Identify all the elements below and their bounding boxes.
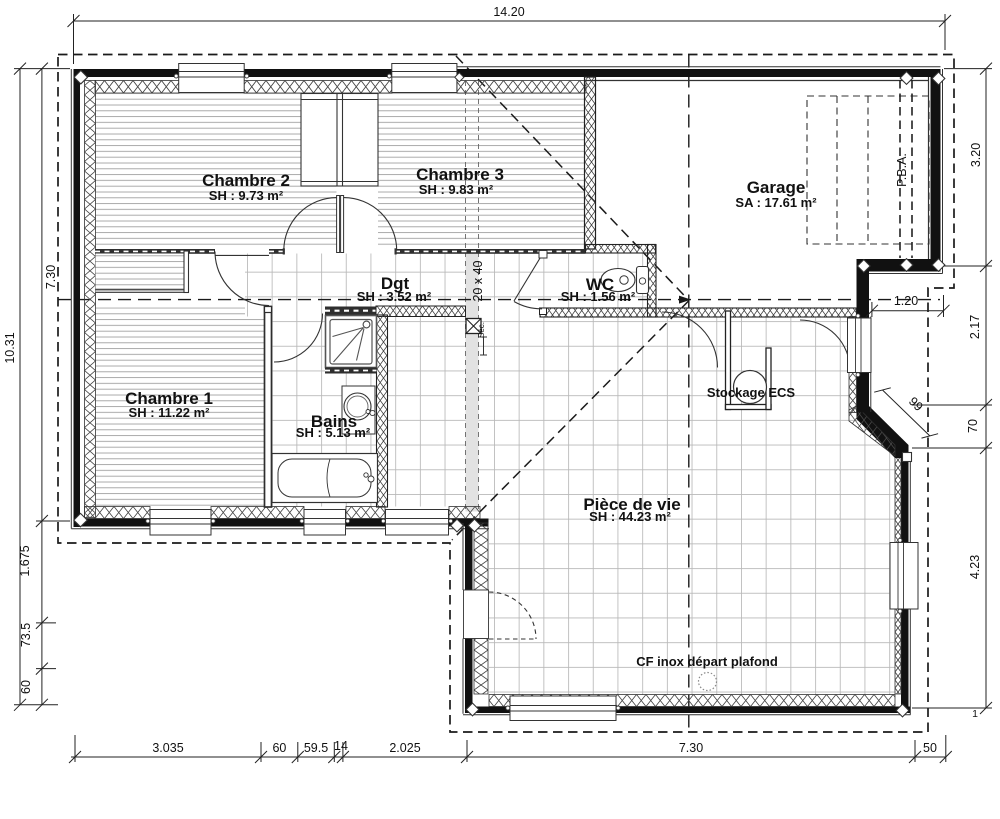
svg-text:SH : 44.23 m²: SH : 44.23 m² [589,509,671,524]
svg-text:1.675: 1.675 [18,545,32,576]
svg-text:10.31: 10.31 [3,332,17,363]
svg-text:7.30: 7.30 [679,741,703,755]
svg-text:SH : 5.13 m²: SH : 5.13 m² [296,425,371,440]
svg-text:2.025: 2.025 [389,741,420,755]
svg-text:73.5: 73.5 [19,623,33,647]
svg-text:SH : 11.22 m²: SH : 11.22 m² [129,405,211,420]
svg-text:14.20: 14.20 [493,5,524,19]
svg-text:SH : 3.52 m²: SH : 3.52 m² [357,289,432,304]
svg-text:Stockage ECS: Stockage ECS [707,385,795,400]
svg-text:70: 70 [966,419,980,433]
svg-text:50: 50 [923,741,937,755]
svg-text:CF inox départ plafond: CF inox départ plafond [636,654,778,669]
svg-text:SH : 9.83 m²: SH : 9.83 m² [419,182,494,197]
svg-text:20 x 40: 20 x 40 [471,260,485,301]
svg-text:7.30: 7.30 [44,265,58,289]
svg-text:P.B.A.: P.B.A. [895,153,909,187]
svg-text:1.20: 1.20 [894,294,918,308]
svg-text:1: 1 [972,708,978,720]
svg-text:59.5: 59.5 [304,741,328,755]
svg-text:3.035: 3.035 [152,741,183,755]
svg-text:14: 14 [334,739,348,753]
svg-text:2.17: 2.17 [968,315,982,339]
svg-text:3.20: 3.20 [969,143,983,167]
svg-text:SH : 9.73 m²: SH : 9.73 m² [209,188,284,203]
svg-text:60: 60 [272,741,286,755]
svg-text:SA : 17.61 m²: SA : 17.61 m² [735,195,817,210]
svg-text:SH : 1.56 m²: SH : 1.56 m² [561,289,636,304]
svg-text:4.23: 4.23 [968,555,982,579]
svg-text:60: 60 [19,680,33,694]
svg-text:Séc.: Séc. [477,322,486,338]
